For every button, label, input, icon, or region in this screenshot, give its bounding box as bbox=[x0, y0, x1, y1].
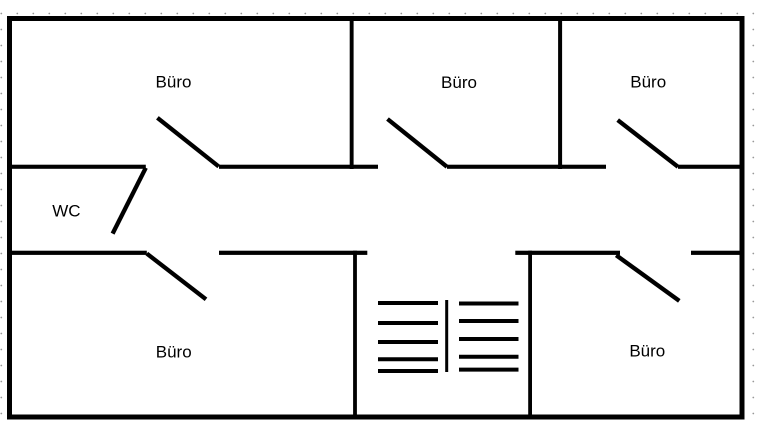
svg-text:Büro: Büro bbox=[156, 72, 192, 91]
svg-text:Büro: Büro bbox=[441, 73, 477, 92]
svg-text:WC: WC bbox=[52, 201, 80, 220]
svg-text:Büro: Büro bbox=[630, 72, 666, 91]
svg-text:Büro: Büro bbox=[629, 342, 665, 361]
svg-text:Büro: Büro bbox=[156, 343, 192, 362]
